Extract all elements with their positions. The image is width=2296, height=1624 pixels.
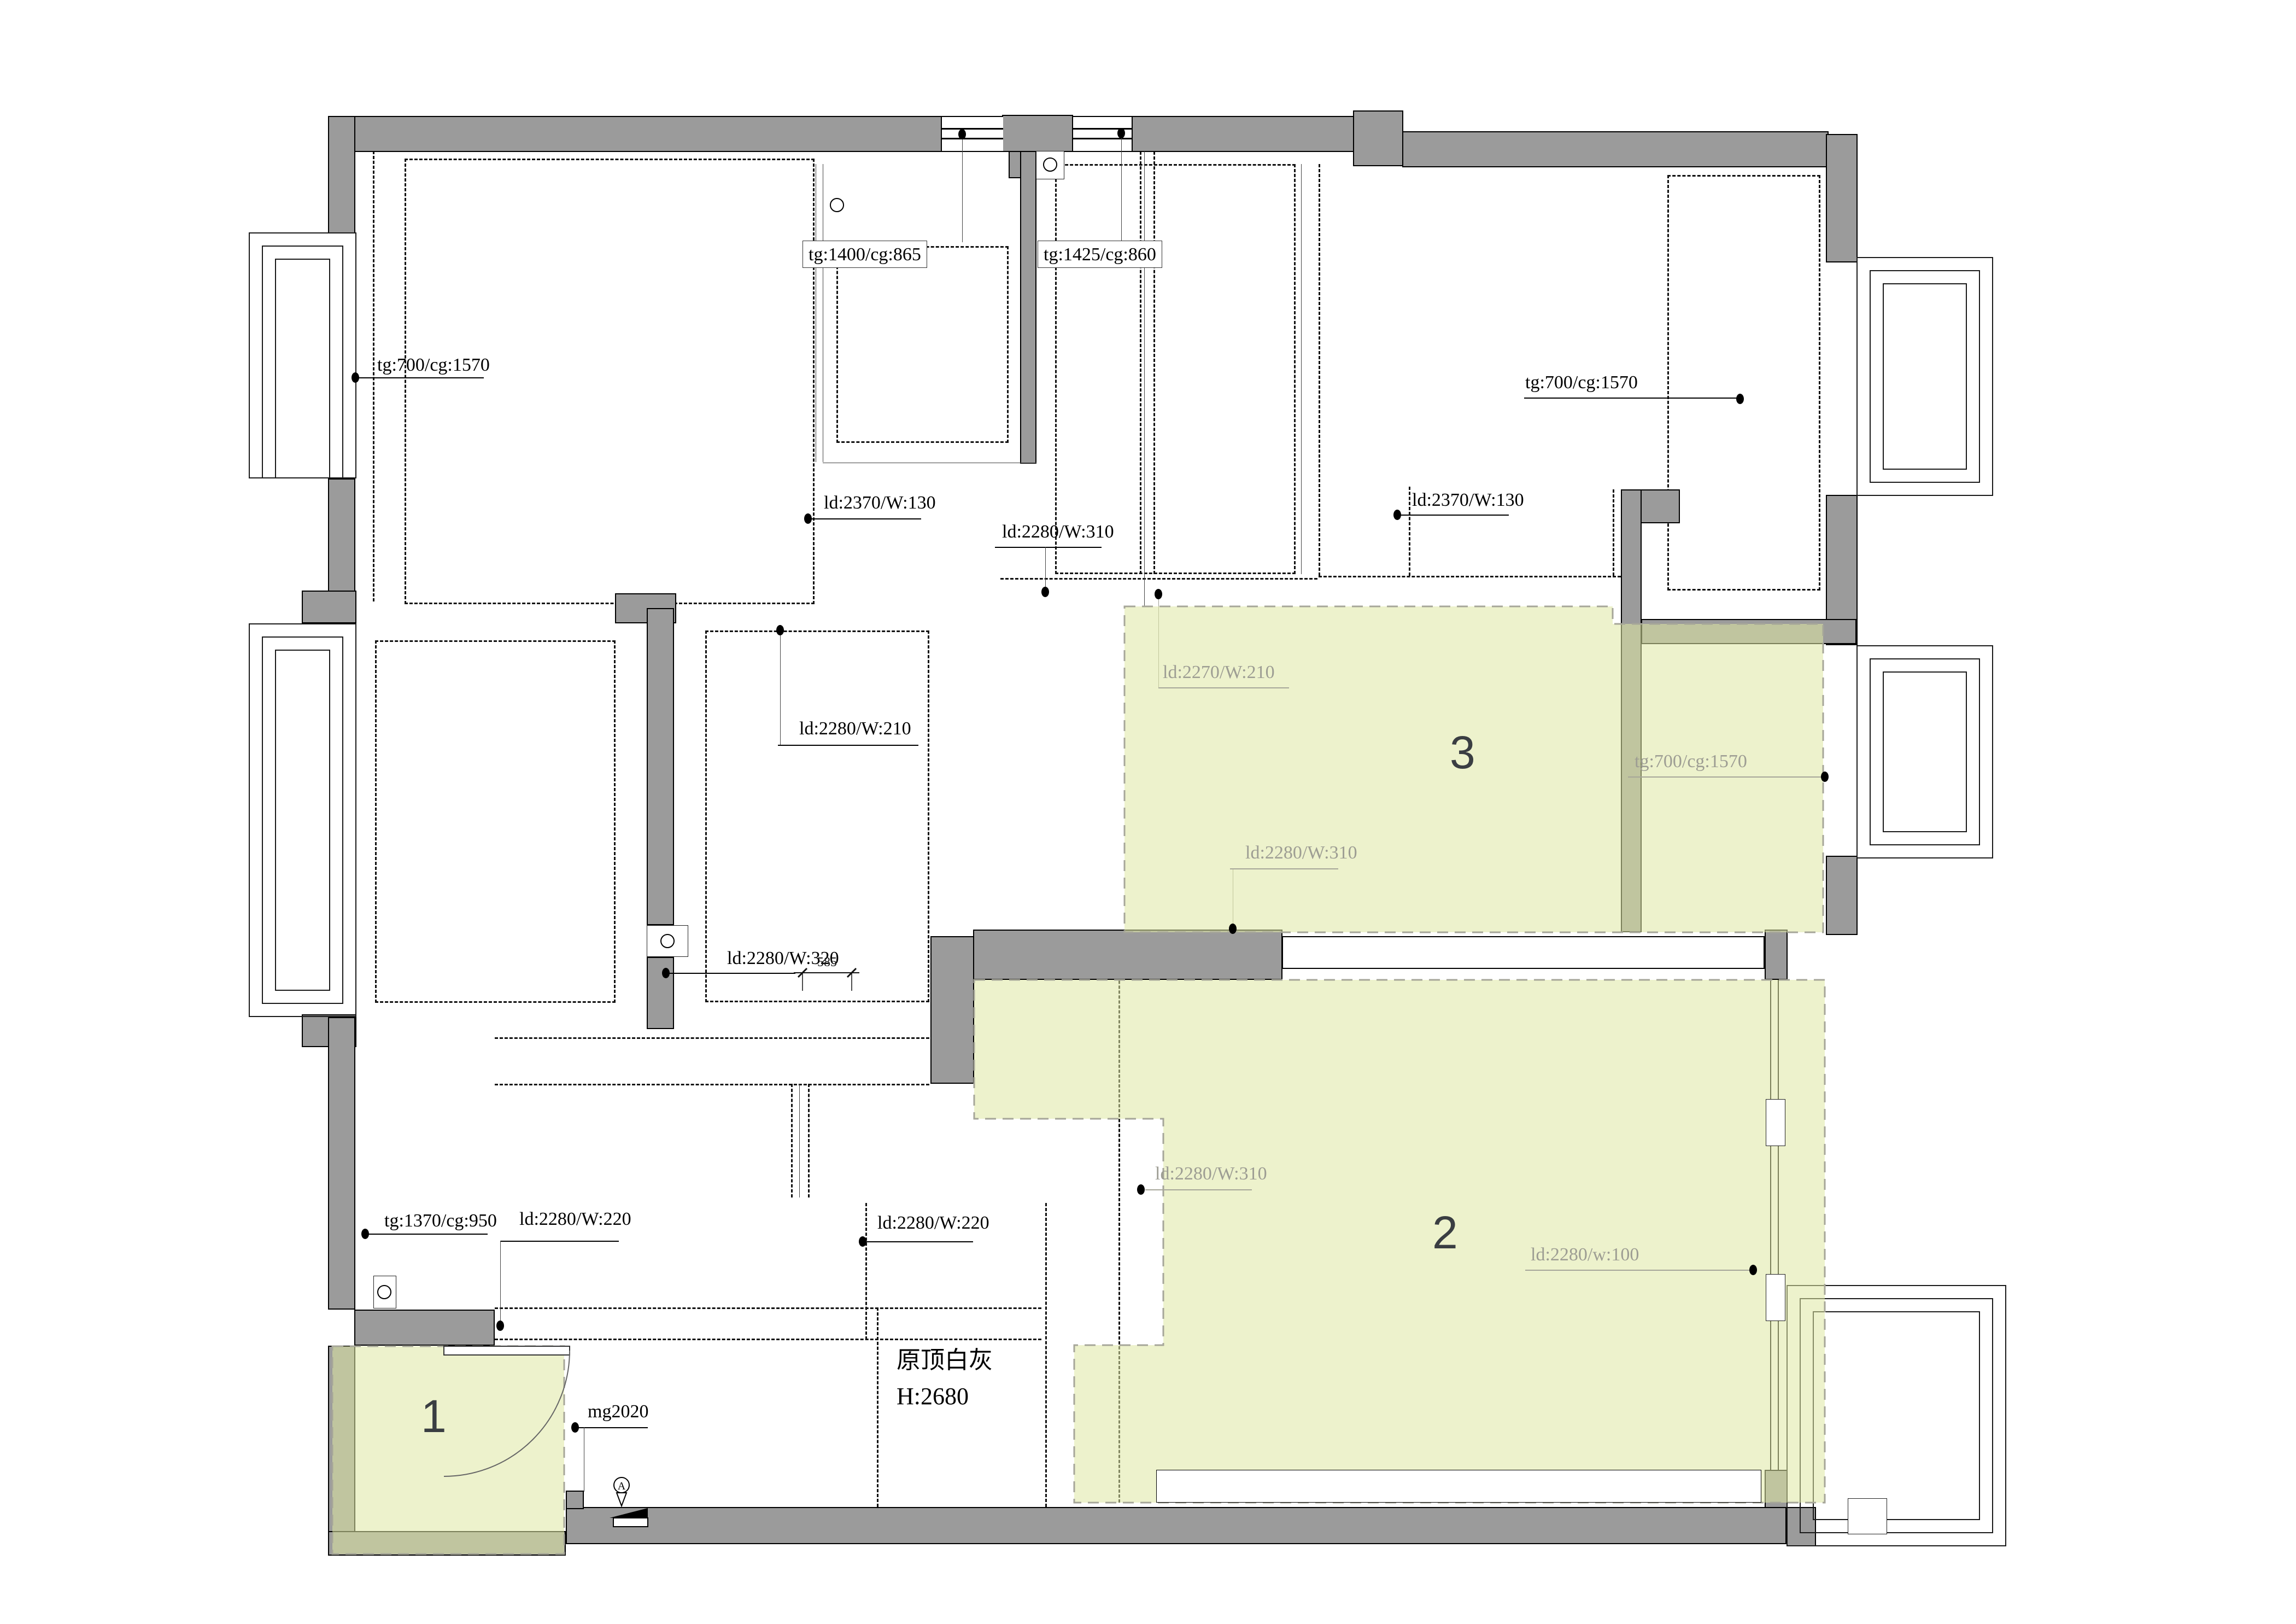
spotlight-icon (660, 934, 675, 948)
ceiling-dashed-line (1140, 151, 1141, 574)
wall-top-mid (1002, 115, 1073, 152)
label-top-win-right: tg:1425/cg:860 (1038, 241, 1162, 268)
wall-interior-left (647, 957, 674, 1029)
leader-dot (1821, 772, 1829, 782)
leader (1045, 547, 1046, 592)
corridor-dashed (495, 1084, 929, 1085)
wall-interior-top (1020, 151, 1036, 464)
door-dashed (791, 1084, 793, 1197)
corridor-dashed (495, 1339, 1041, 1340)
spotlight-icon (377, 1285, 391, 1299)
leader (1628, 776, 1821, 778)
label-ld-top-mid: ld:2280/W:310 (1002, 523, 1114, 541)
wall-interior-left (647, 608, 674, 925)
leader (1158, 687, 1289, 688)
wall-entry-south (328, 1531, 566, 1556)
area-1-highlight (332, 1346, 564, 1554)
ceiling-dashed-line (1319, 576, 1621, 577)
leader (365, 1234, 488, 1235)
leader (995, 547, 1102, 548)
wall-left (328, 1017, 355, 1310)
door-line (799, 1084, 800, 1197)
label-dim-585: 585 (817, 956, 837, 969)
leader-dot (1749, 1265, 1757, 1275)
curtain-box-bottom (1156, 1470, 1761, 1503)
elevation-marker-arrow (617, 1493, 626, 1506)
room-note-line1: 原顶白灰 (897, 1342, 993, 1378)
leader-dot (1229, 924, 1237, 934)
leader-dot (1736, 394, 1744, 404)
spotlight-icon (1043, 157, 1057, 172)
ceiling-dashed-room-topleft (405, 159, 815, 604)
balcony-door-handle (1766, 1274, 1785, 1321)
leader (1524, 398, 1737, 399)
wall-bottom (566, 1507, 1787, 1544)
corridor-dashed (877, 1307, 878, 1507)
curtain-box (1282, 936, 1765, 969)
leader-dot (776, 625, 784, 635)
area-1-number: 1 (421, 1393, 447, 1439)
bay-window-topleft (275, 259, 330, 478)
label-bl-ceiling: tg:1370/cg:950 (384, 1212, 497, 1230)
ceiling-dashed-line (1319, 164, 1320, 576)
leader-dot (352, 372, 359, 383)
leader-dot (1393, 510, 1401, 520)
leader-dot (662, 968, 670, 978)
svg-text:A: A (618, 1480, 626, 1492)
label-area2-ld-right: ld:2280/w:100 (1531, 1246, 1639, 1264)
leader (500, 1241, 501, 1323)
bay-window-topright (1883, 283, 1967, 470)
label-center-ld: ld:2280/W:210 (799, 720, 911, 738)
ceiling-dashed-line (1153, 151, 1155, 574)
leader (1145, 1189, 1252, 1190)
balcony-door-handle (1766, 1099, 1785, 1146)
balcony-door-line (1770, 980, 1771, 1470)
ceiling-dashed-room-topright (1667, 175, 1820, 591)
ceiling-line (1144, 151, 1145, 607)
wall-left (328, 116, 355, 233)
area-2-highlight (974, 980, 1825, 1503)
leader-dot (571, 1422, 579, 1433)
balcony-door-line (1778, 980, 1779, 1470)
room-note: 原顶白灰 H:2680 (897, 1342, 993, 1415)
balcony-bottom-right (1813, 1311, 1980, 1520)
leader-dot (804, 513, 812, 524)
spotlight-icon (830, 198, 844, 212)
leader (962, 134, 963, 242)
wall-right-rooms (1641, 619, 1856, 644)
balcony-unit-box (1848, 1498, 1887, 1534)
leader-dot (361, 1229, 369, 1239)
closet-line (823, 164, 823, 462)
wall-balcony-jamb (1765, 1470, 1788, 1508)
label-ld-left: ld:2370/W:130 (824, 494, 936, 512)
label-tr-ceiling: tg:700/cg:1570 (1525, 373, 1638, 392)
leader-dot (958, 129, 966, 139)
living-dashed (1118, 936, 1120, 1503)
label-area3-ceiling: tg:700/cg:1570 (1635, 752, 1747, 771)
door-dashed (808, 1084, 810, 1197)
label-corr-ld-right: ld:2280/W:220 (877, 1214, 989, 1232)
leader-dot (1117, 128, 1125, 138)
wall-bottom-step (566, 1491, 584, 1509)
ceiling-dashed-room-midleft (836, 246, 1009, 443)
elevation-marker (614, 1477, 629, 1493)
wall-right (1826, 856, 1858, 935)
leader-dot (859, 1236, 866, 1247)
leader (778, 745, 918, 746)
entry-door-leaf (444, 1346, 570, 1355)
leader (1230, 868, 1338, 869)
leader-dot (496, 1321, 504, 1331)
label-entry-door: mg2020 (588, 1403, 648, 1421)
wall-jog (1353, 110, 1403, 166)
leader (500, 1241, 619, 1242)
wall-right (1826, 134, 1858, 262)
label-area3-ld-top: ld:2270/W:210 (1163, 663, 1275, 682)
label-tl-ceiling: tg:700/cg:1570 (377, 356, 490, 375)
label-ld-right: ld:2370/W:130 (1412, 491, 1524, 510)
leader-dot (1041, 587, 1049, 597)
leader (1233, 868, 1233, 927)
bay-window-left (275, 650, 330, 991)
corridor-dashed (1045, 1203, 1047, 1507)
leader (780, 630, 781, 745)
leader-dot (1137, 1184, 1145, 1195)
wall-top-left (354, 116, 942, 152)
leader (355, 377, 484, 378)
floor-plan: A tg:700/cg: (0, 0, 2296, 1624)
leader (1121, 133, 1122, 241)
ceiling-line (1301, 164, 1302, 574)
wall-left-block (302, 591, 356, 623)
room-note-line2: H:2680 (897, 1378, 993, 1415)
bay-window-right (1883, 671, 1967, 832)
wall-entry-north (354, 1310, 495, 1346)
label-area2-ld-left: ld:2280/W:310 (1155, 1165, 1267, 1183)
area-2-number: 2 (1432, 1210, 1458, 1255)
ceiling-line (823, 463, 1036, 463)
label-area3-ld-bot: ld:2280/W:310 (1245, 844, 1357, 862)
label-corr-ld-left: ld:2280/W:220 (519, 1210, 631, 1229)
leader (664, 973, 795, 974)
wall-top-right (1402, 131, 1829, 167)
ceiling-dashed-line (1000, 578, 1317, 580)
leader (1158, 596, 1159, 687)
corridor-dashed (495, 1037, 929, 1039)
entry-door-swing-arc (444, 1351, 570, 1476)
wall-left-entry (328, 1346, 355, 1556)
ceiling-dashed-room-center (705, 630, 929, 1002)
leader (1397, 515, 1509, 516)
leader-dot (1155, 589, 1162, 599)
ceiling-dashed-room-midright (1055, 164, 1296, 574)
closet-line (816, 164, 816, 462)
wall-left (328, 478, 355, 610)
ceiling-dashed-room-leftmid (375, 640, 616, 1003)
area-3-number: 3 (1450, 729, 1475, 775)
corridor-dashed (495, 1307, 1041, 1309)
ceiling-dashed-line (373, 131, 374, 601)
ceiling-dashed-line (1613, 489, 1614, 576)
window-top-left (942, 116, 1003, 152)
ceiling-dashed-line (1409, 487, 1410, 576)
leader (584, 1427, 584, 1492)
leader (1525, 1270, 1751, 1271)
leader (577, 1427, 648, 1428)
label-top-win-left: tg:1400/cg:865 (803, 241, 927, 268)
leader (866, 1241, 973, 1242)
wall-center-h (973, 930, 1282, 980)
wall-balcony-jamb (1765, 930, 1788, 980)
wall-center-v (930, 936, 974, 1084)
wall-interior-right (1621, 489, 1642, 932)
corridor-dashed (865, 1203, 867, 1340)
leader (808, 518, 921, 519)
